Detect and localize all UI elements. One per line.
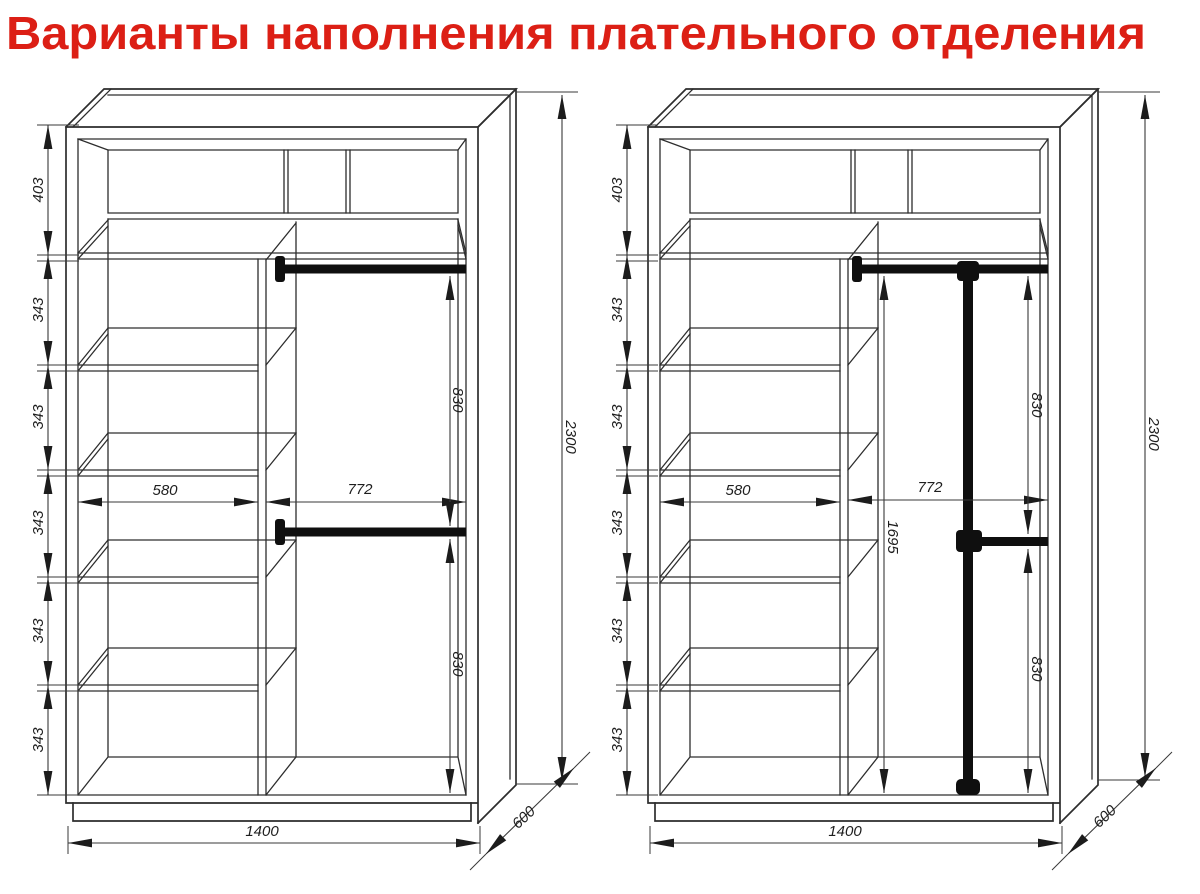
dim-upper-drop: 830 bbox=[449, 387, 466, 413]
dim-shelf-width: 580 bbox=[725, 482, 751, 499]
pole-top-connector bbox=[957, 261, 979, 281]
hanging-rod-upper bbox=[284, 265, 466, 274]
rod-end-cap bbox=[275, 519, 285, 545]
dim-total-width: 1400 bbox=[245, 823, 279, 840]
hanging-rod-lower bbox=[973, 537, 1048, 546]
rod-end-cap bbox=[852, 256, 862, 282]
dim-hanging-width: 772 bbox=[347, 481, 373, 498]
dim-lower-drop: 830 bbox=[449, 651, 466, 677]
dim-total-height: 2300 bbox=[562, 419, 579, 454]
dim-pole-drop: 1695 bbox=[884, 520, 901, 554]
rod-end-cap bbox=[275, 256, 285, 282]
wardrobe-2-carcass bbox=[648, 89, 1098, 823]
dim-shelf-gap: 343 bbox=[609, 404, 626, 430]
dim-shelf-width: 580 bbox=[152, 482, 178, 499]
dim-shelf-gap: 343 bbox=[609, 297, 626, 323]
wardrobe-variant-2: 403 343 343 343 343 343 580 772 1695 830… bbox=[609, 89, 1172, 870]
wardrobe-1-dimensions: 403 343 343 343 343 343 580 772 830 830 … bbox=[30, 92, 590, 870]
dim-shelf-gap: 343 bbox=[609, 510, 626, 536]
diagram-canvas: Варианты наполнения плательного отделени… bbox=[0, 0, 1200, 894]
dim-shelf-gap: 343 bbox=[30, 618, 47, 644]
wardrobe-1-carcass bbox=[66, 89, 516, 823]
page-title: Варианты наполнения плательного отделени… bbox=[6, 7, 1146, 59]
wardrobe-variant-1: 403 343 343 343 343 343 580 772 830 830 … bbox=[30, 89, 590, 870]
wardrobe-2-rods bbox=[852, 256, 1048, 795]
dim-top-compartment: 403 bbox=[30, 177, 47, 203]
hanging-rod-upper bbox=[861, 265, 1048, 274]
dim-hanging-width: 772 bbox=[917, 479, 943, 496]
pole-mid-connector bbox=[956, 530, 982, 552]
dim-shelf-gap: 343 bbox=[609, 727, 626, 753]
hanging-rod-lower bbox=[284, 528, 466, 537]
dim-shelf-gap: 343 bbox=[30, 727, 47, 753]
wardrobe-filling-diagram: Варианты наполнения плательного отделени… bbox=[0, 0, 1200, 894]
dim-depth: 600 bbox=[1090, 802, 1120, 832]
wardrobe-2-dimensions: 403 343 343 343 343 343 580 772 1695 830… bbox=[609, 92, 1172, 870]
wardrobe-2-interior bbox=[660, 139, 1048, 795]
dim-lower-drop: 830 bbox=[1028, 656, 1045, 682]
dim-total-height: 2300 bbox=[1145, 416, 1162, 451]
pole-foot bbox=[956, 779, 980, 795]
dim-upper-drop: 830 bbox=[1028, 392, 1045, 418]
dim-shelf-gap: 343 bbox=[30, 404, 47, 430]
dim-top-compartment: 403 bbox=[609, 177, 626, 203]
dim-shelf-gap: 343 bbox=[609, 618, 626, 644]
dim-shelf-gap: 343 bbox=[30, 297, 47, 323]
dim-total-width: 1400 bbox=[828, 823, 862, 840]
dim-shelf-gap: 343 bbox=[30, 510, 47, 536]
wardrobe-1-interior bbox=[78, 139, 466, 795]
